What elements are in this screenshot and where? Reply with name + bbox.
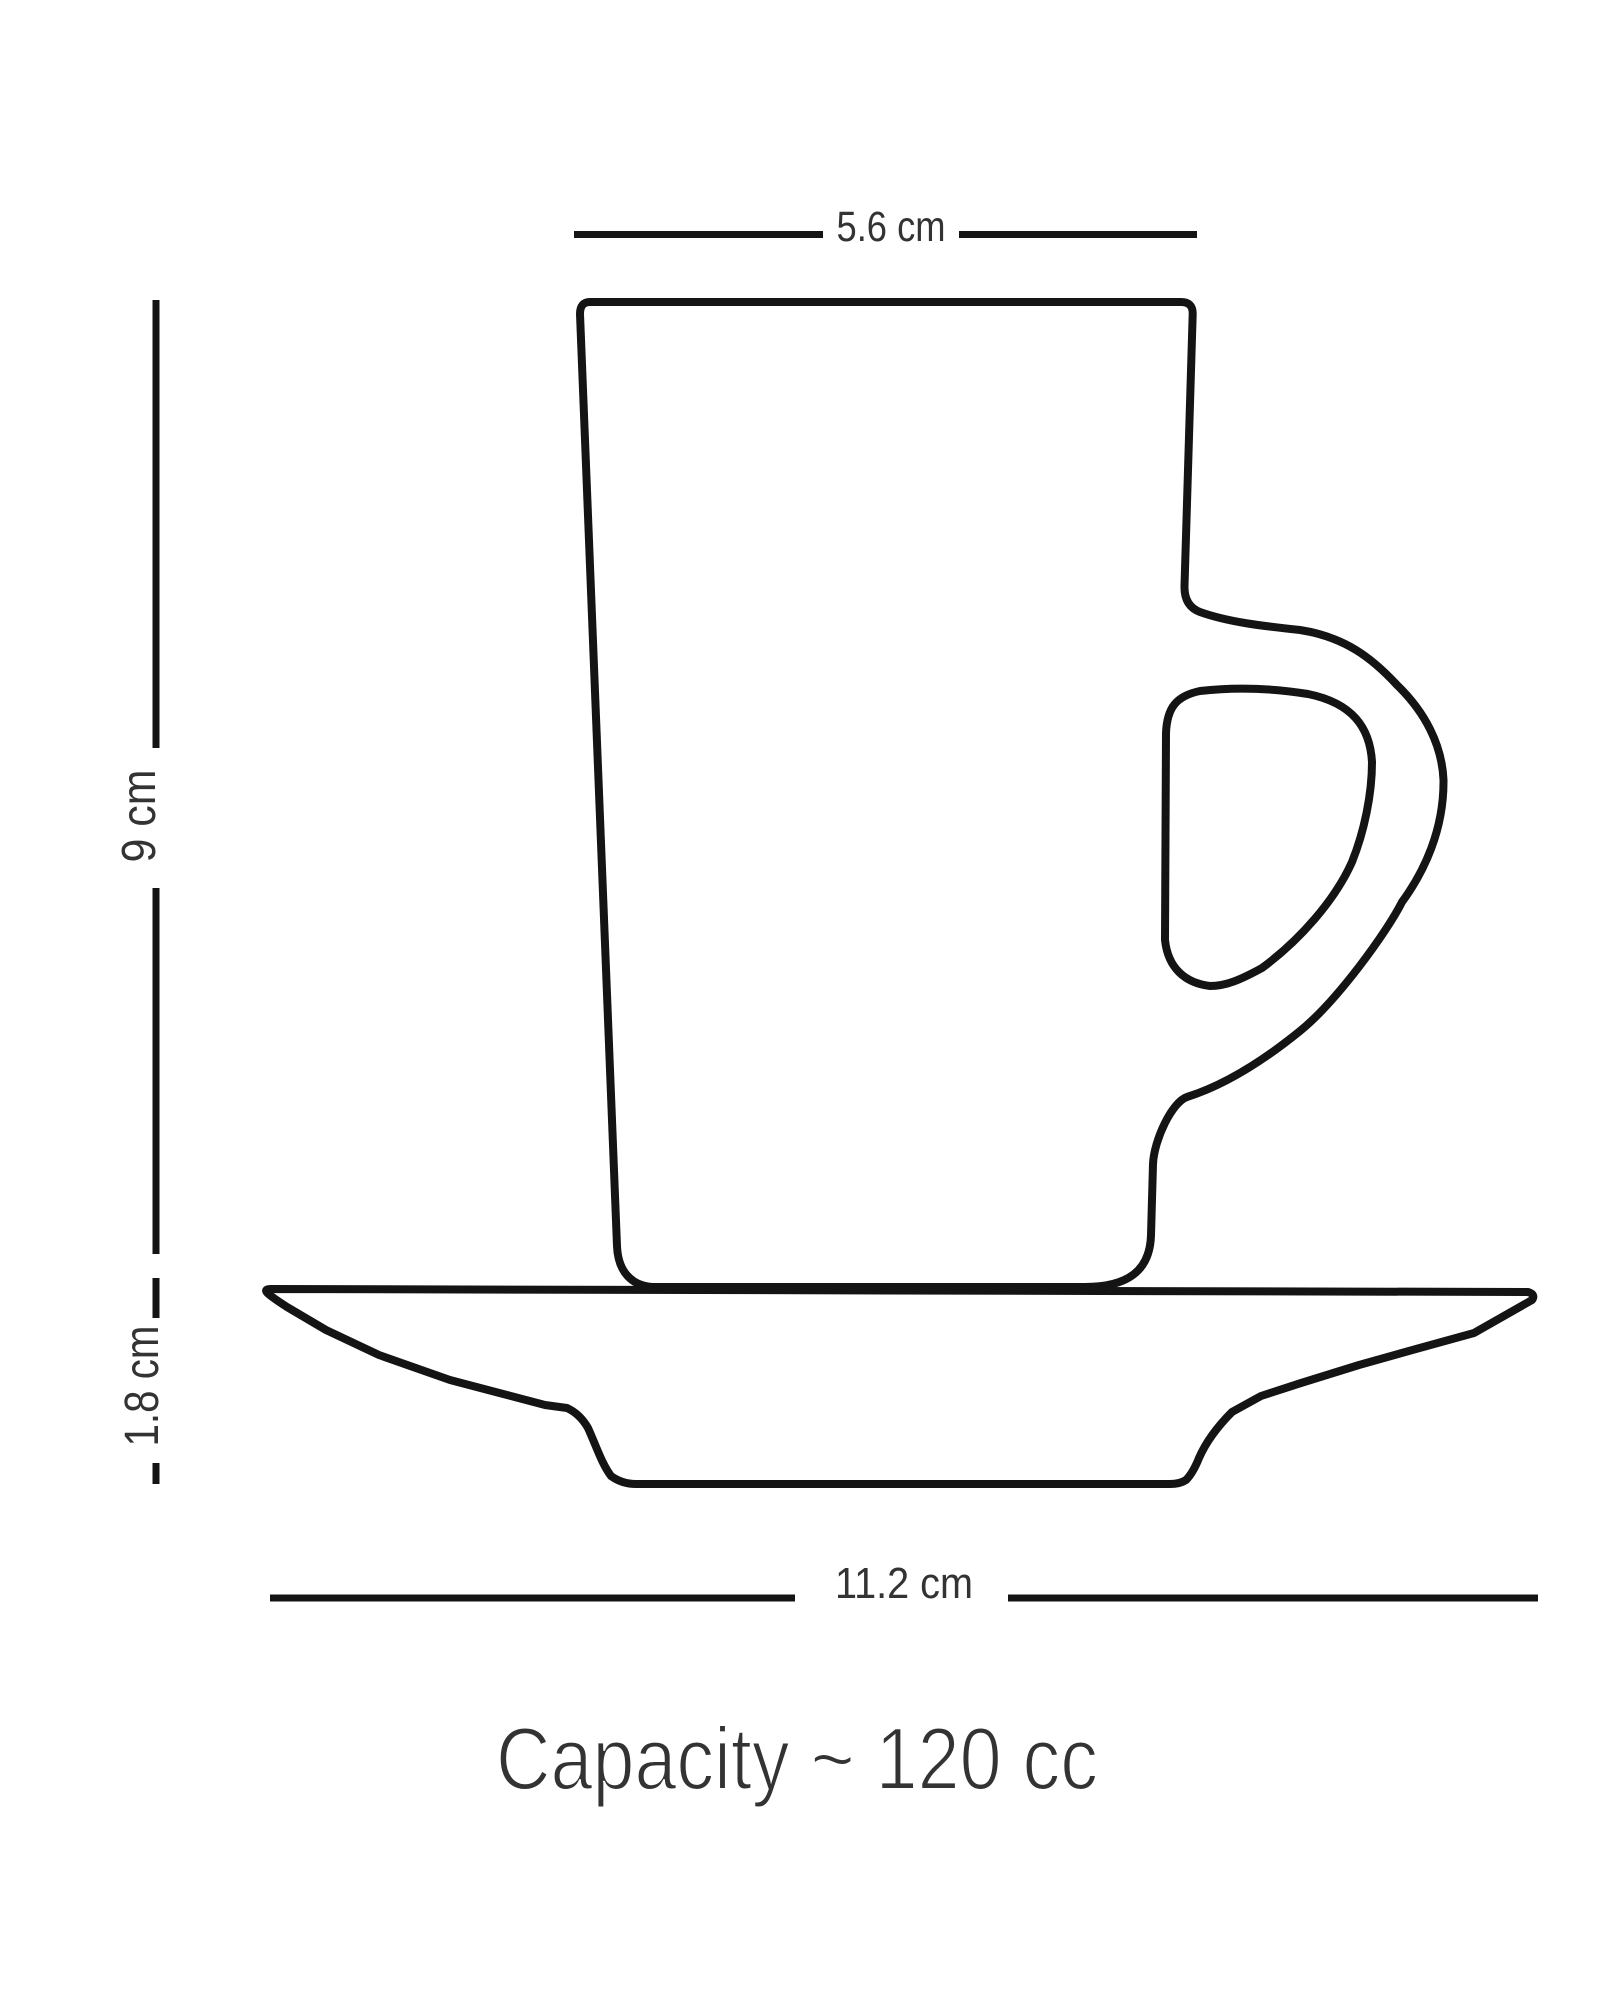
svg-text:1.8 cm: 1.8 cm	[116, 1326, 169, 1447]
svg-text:Capacity ~ 120 cc: Capacity ~ 120 cc	[496, 1709, 1098, 1808]
svg-text:9 cm: 9 cm	[113, 770, 166, 863]
svg-text:5.6 cm: 5.6 cm	[837, 203, 946, 251]
svg-text:11.2 cm: 11.2 cm	[835, 1559, 973, 1608]
